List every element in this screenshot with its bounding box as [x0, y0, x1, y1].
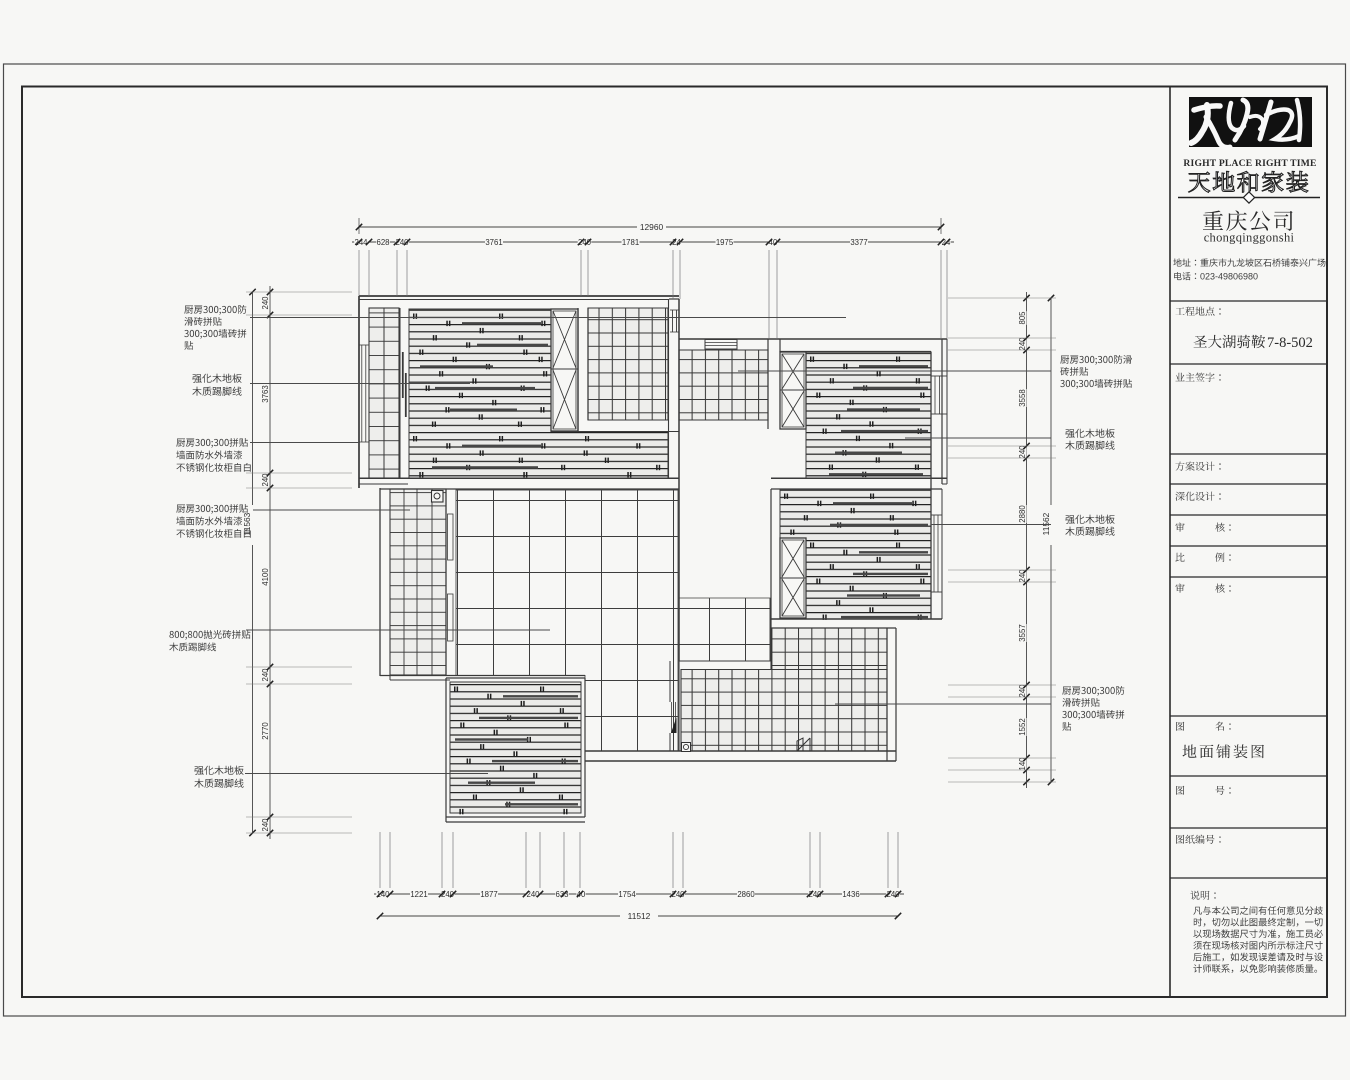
svg-text:RIGHT PLACE RIGHT TIME: RIGHT PLACE RIGHT TIME: [1183, 158, 1316, 169]
svg-text:240: 240: [261, 818, 270, 832]
svg-text:40: 40: [577, 890, 586, 899]
svg-text:2880: 2880: [1018, 505, 1027, 523]
svg-text:628: 628: [376, 238, 389, 247]
svg-text:240: 240: [261, 296, 270, 310]
svg-text:2770: 2770: [261, 722, 270, 740]
svg-text:023-49806980: 023-49806980: [1200, 272, 1258, 282]
svg-text:11512: 11512: [628, 911, 651, 921]
svg-text:805: 805: [1018, 311, 1027, 325]
svg-text:1781: 1781: [622, 238, 639, 247]
svg-text:3558: 3558: [1018, 389, 1027, 406]
svg-text:1975: 1975: [716, 238, 734, 247]
svg-text:3377: 3377: [850, 238, 867, 247]
svg-text:1552: 1552: [1018, 718, 1027, 735]
svg-text:1221: 1221: [410, 890, 427, 899]
svg-text:3763: 3763: [261, 385, 270, 402]
svg-text:1436: 1436: [842, 890, 859, 899]
svg-text:chongqinggonshi: chongqinggonshi: [1204, 231, 1295, 245]
svg-text:3761: 3761: [485, 238, 502, 247]
svg-text:4100: 4100: [261, 568, 270, 586]
svg-text:3557: 3557: [1018, 624, 1027, 641]
svg-text:11562: 11562: [1041, 512, 1051, 535]
svg-text:2860: 2860: [737, 890, 755, 899]
svg-text:12960: 12960: [640, 222, 664, 232]
svg-text:1754: 1754: [618, 890, 636, 899]
svg-text:240: 240: [261, 668, 270, 682]
svg-text:7-8-502: 7-8-502: [1267, 335, 1313, 351]
svg-text:1877: 1877: [480, 890, 497, 899]
